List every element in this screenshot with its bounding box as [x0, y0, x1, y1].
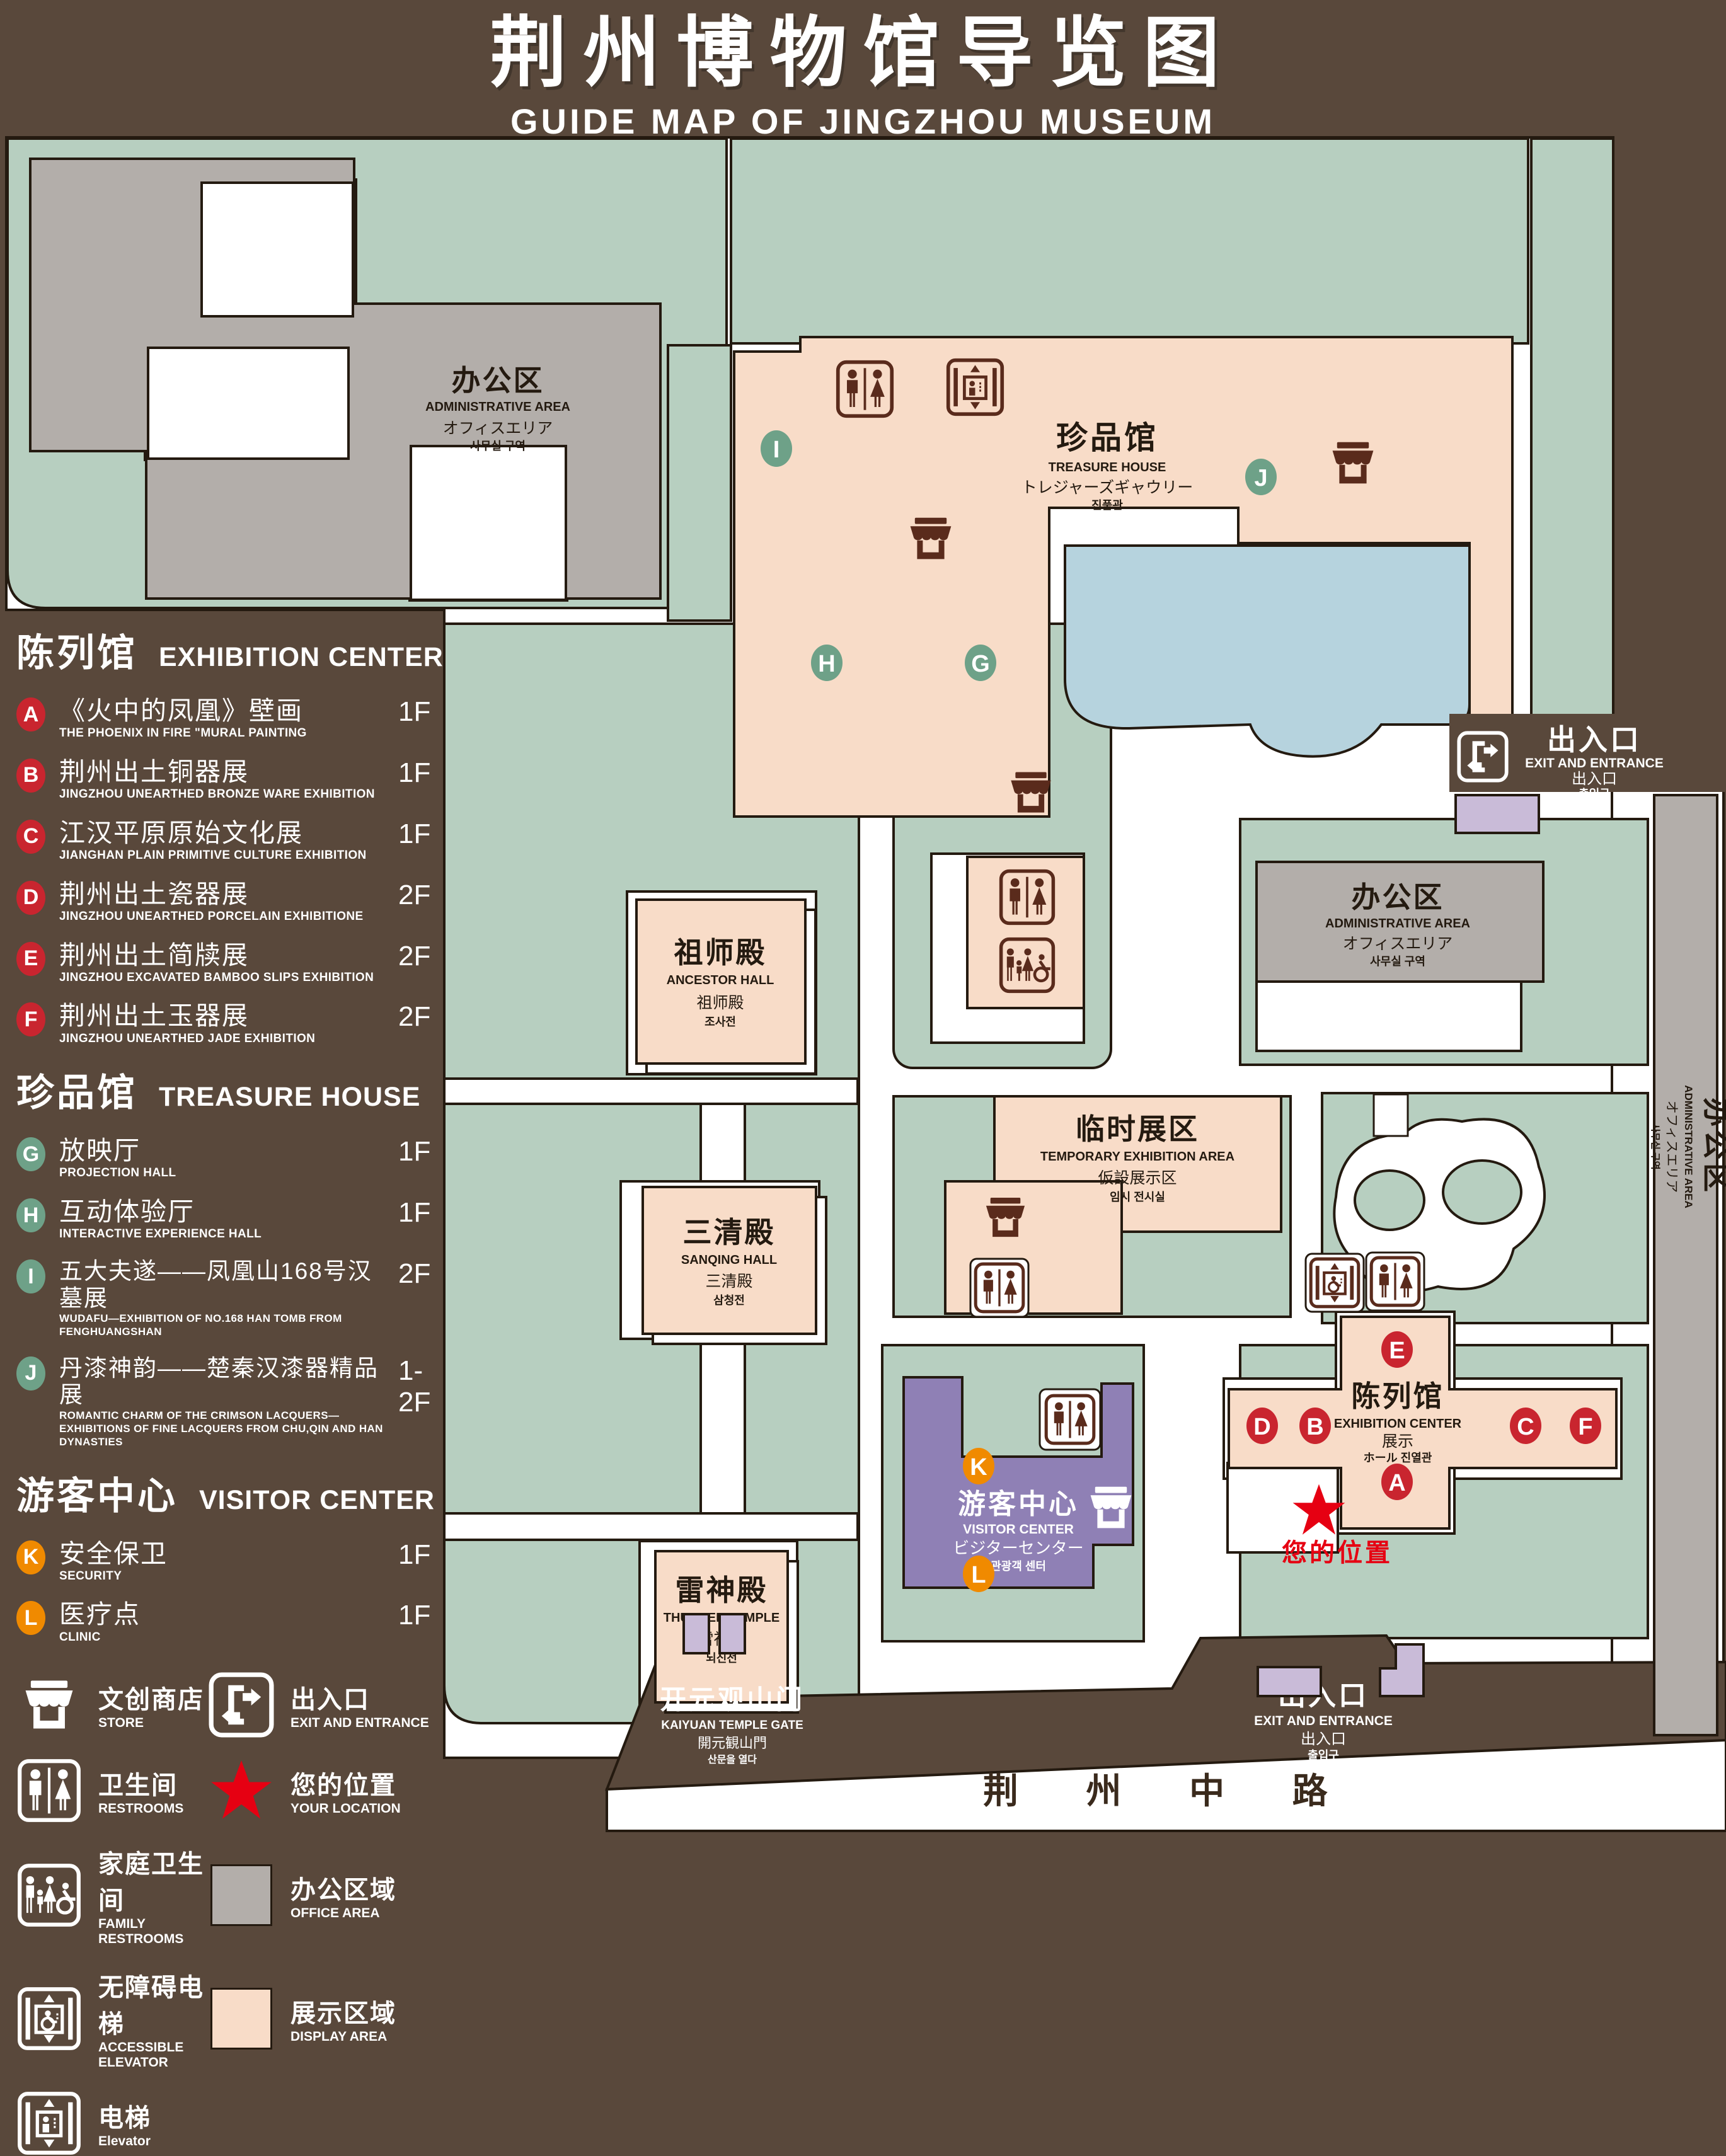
marker-badge: J: [16, 1356, 45, 1391]
svg-text:KAIYUAN TEMPLE GATE: KAIYUAN TEMPLE GATE: [661, 1719, 803, 1732]
svg-text:출입구: 출입구: [1308, 1748, 1339, 1762]
svg-text:珍品馆: 珍品馆: [1056, 420, 1158, 456]
svg-text:ADMINISTRATIVE AREA: ADMINISTRATIVE AREA: [1683, 1085, 1694, 1208]
svg-text:トレジャーズギャウリー: トレジャーズギャウリー: [1021, 479, 1194, 496]
svg-text:관광객 센터: 관광객 센터: [991, 1560, 1046, 1573]
svg-text:出入口: 出入口: [1301, 1731, 1346, 1748]
floor-label: 2F: [398, 880, 451, 911]
svg-text:仮設展示区: 仮設展示区: [1098, 1169, 1177, 1187]
svg-text:삼청전: 삼청전: [713, 1294, 745, 1307]
section-title-en: EXHIBITION CENTER: [159, 642, 444, 673]
svg-text:진품관: 진품관: [1091, 499, 1123, 512]
legend-item-h: H 互动体验厅INTERACTIVE EXPERIENCE HALL 1F: [16, 1197, 451, 1242]
display-area-swatch: [210, 1988, 272, 2050]
legend-item-k: K 安全保卫SECURITY 1F: [16, 1539, 451, 1584]
svg-text:办公区: 办公区: [452, 364, 544, 397]
svg-text:三清殿: 三清殿: [683, 1216, 776, 1249]
svg-text:EXIT AND ENTRANCE: EXIT AND ENTRANCE: [1254, 1714, 1393, 1728]
restroom-icon: [16, 1758, 82, 1823]
svg-text:出入口: 出入口: [1547, 723, 1642, 756]
section-title-zh: 陈列馆: [16, 622, 137, 677]
building-ancestor-hall: 祖师殿 ANCESTOR HALL 祖师殿 조사전: [636, 900, 815, 1074]
svg-text:L: L: [971, 1562, 986, 1588]
floor-label: 1F: [398, 818, 451, 850]
floor-label: 2F: [398, 1258, 451, 1290]
road-label: 荆 州 中 路: [983, 1771, 1357, 1811]
marker-badge: H: [16, 1198, 45, 1232]
svg-text:TEMPORARY EXHIBITION AREA: TEMPORARY EXHIBITION AREA: [1040, 1150, 1234, 1164]
marker-badge: K: [16, 1540, 45, 1574]
store-icon: [16, 1672, 82, 1738]
svg-text:K: K: [970, 1454, 987, 1481]
floor-label: 1F: [398, 1197, 451, 1229]
legend-symbols: 文创商店STORE 出入口EXIT AND ENTRANCE 卫生间RESTRO…: [16, 1672, 451, 2156]
svg-text:H: H: [818, 651, 835, 677]
svg-text:사무실 구역: 사무실 구역: [1650, 1123, 1660, 1169]
legend-symbol-display-area: 展示区域DISPLAY AREA: [209, 1967, 451, 2070]
svg-text:ビジターセンター: ビジターセンター: [953, 1539, 1083, 1557]
svg-text:ANCESTOR HALL: ANCESTOR HALL: [667, 973, 774, 987]
svg-text:ADMINISTRATIVE AREA: ADMINISTRATIVE AREA: [425, 400, 570, 414]
svg-text:您的位置: 您的位置: [1282, 1539, 1393, 1567]
svg-text:EXIT AND ENTRANCE: EXIT AND ENTRANCE: [1525, 756, 1664, 771]
building-restrooms-block: [967, 857, 1084, 1008]
svg-text:사무실 구역: 사무실 구역: [1370, 955, 1425, 968]
svg-text:출입구: 출입구: [1579, 787, 1610, 800]
exit-icon: [209, 1672, 274, 1738]
svg-text:TREASURE HOUSE: TREASURE HOUSE: [1049, 461, 1166, 474]
legend-symbol-restrooms: 卫生间RESTROOMS: [16, 1758, 209, 1823]
floor-label: 2F: [398, 941, 451, 972]
svg-text:开元观山门: 开元观山门: [660, 1685, 805, 1714]
svg-text:F: F: [1578, 1414, 1592, 1440]
marker-badge: L: [16, 1601, 45, 1635]
svg-text:オフィスエリア: オフィスエリア: [1343, 935, 1453, 953]
legend-symbol-exit: 出入口EXIT AND ENTRANCE: [209, 1672, 451, 1738]
exit-right-building: [1456, 795, 1539, 833]
svg-text:办公区: 办公区: [1352, 881, 1444, 914]
building-admin-right: 办公区 ADMINISTRATIVE AREA オフィスエリア 사무실 구역: [1650, 795, 1726, 1735]
your-location-star-icon: [209, 1758, 274, 1823]
svg-text:B: B: [1306, 1414, 1323, 1440]
svg-text:游客中心: 游客中心: [958, 1489, 1079, 1520]
svg-text:出入口: 出入口: [1572, 771, 1617, 788]
svg-text:ADMINISTRATIVE AREA: ADMINISTRATIVE AREA: [1325, 917, 1470, 931]
marker-badge: A: [16, 697, 45, 731]
marker-badge: G: [16, 1137, 45, 1171]
legend-symbol-family-restrooms: 家庭卫生间FAMILY RESTROOMS: [16, 1843, 209, 1947]
svg-text:조사전: 조사전: [705, 1016, 736, 1028]
marker-badge: C: [16, 820, 45, 854]
svg-text:사무실 구역: 사무실 구역: [470, 440, 526, 452]
svg-text:祖师殿: 祖师殿: [674, 936, 767, 969]
marker-badge: D: [16, 881, 45, 915]
legend-symbol-your-location: 您的位置YOUR LOCATION: [209, 1758, 451, 1823]
floor-label: 2F: [398, 1001, 451, 1033]
legend-item-e: E 荆州出土简牍展JINGZHOU EXCAVATED BAMBOO SLIPS…: [16, 941, 451, 985]
svg-text:G: G: [971, 651, 990, 677]
svg-text:開元観山門: 開元観山門: [698, 1735, 767, 1751]
svg-text:オフィスエリア: オフィスエリア: [1664, 1101, 1679, 1193]
svg-text:J: J: [1254, 465, 1267, 491]
svg-text:临时展区: 临时展区: [1076, 1113, 1199, 1145]
accessible-elevator-icon: [1311, 1259, 1359, 1307]
title-zh: 荆州博物馆导览图: [0, 9, 1726, 97]
svg-text:陈列馆: 陈列馆: [1352, 1380, 1444, 1413]
family-restroom-icon: [16, 1862, 82, 1928]
floor-label: 1F: [398, 1539, 451, 1571]
svg-text:展示: 展示: [1382, 1433, 1413, 1450]
svg-text:VISITOR CENTER: VISITOR CENTER: [963, 1522, 1074, 1537]
legend: 陈列馆 EXHIBITION CENTER A 《火中的凤凰》壁画THE PHO…: [16, 622, 451, 2156]
legend-section-treasure-house: 珍品馆 TREASURE HOUSE: [16, 1062, 451, 1117]
floor-label: 1F: [398, 696, 451, 728]
legend-item-b: B 荆州出土铜器展JINGZHOU UNEARTHED BRONZE WARE …: [16, 757, 451, 802]
svg-text:임시 전시실: 임시 전시실: [1110, 1191, 1165, 1203]
legend-item-j: J 丹漆神韵——楚秦汉漆器精品展ROMANTIC CHARM OF THE CR…: [16, 1355, 451, 1449]
pond: [1065, 546, 1470, 757]
legend-item-d: D 荆州出土瓷器展JINGZHOU UNEARTHED PORCELAIN EX…: [16, 880, 451, 924]
svg-text:ホール 진열관: ホール 진열관: [1364, 1452, 1432, 1464]
legend-item-g: G 放映厅PROJECTION HALL 1F: [16, 1136, 451, 1181]
floor-label: 1F: [398, 1136, 451, 1167]
svg-text:办公区: 办公区: [1700, 1098, 1726, 1196]
svg-text:祖师殿: 祖师殿: [696, 994, 744, 1012]
legend-item-l: L 医疗点CLINIC 1F: [16, 1600, 451, 1644]
title-en: GUIDE MAP OF JINGZHOU MUSEUM: [0, 101, 1726, 142]
marker-badge: I: [16, 1259, 45, 1293]
svg-text:I: I: [773, 437, 780, 463]
svg-text:C: C: [1517, 1414, 1534, 1440]
office-area-swatch: [210, 1864, 272, 1926]
svg-text:EXHIBITION CENTER: EXHIBITION CENTER: [1334, 1417, 1462, 1431]
legend-item-i: I 五大夫遂——凤凰山168号汉墓展WUDAFU—EXHIBITION OF N…: [16, 1258, 451, 1339]
page-title: 荆州博物馆导览图 GUIDE MAP OF JINGZHOU MUSEUM: [0, 9, 1726, 142]
building-admin-mid: 办公区 ADMINISTRATIVE AREA オフィスエリア 사무실 구역: [1257, 862, 1543, 982]
legend-section-visitor-center: 游客中心 VISITOR CENTER: [16, 1465, 451, 1520]
building-sanqing-hall: 三清殿 SANQING HALL 三清殿 삼청전: [643, 1187, 826, 1344]
svg-text:雷神殿: 雷神殿: [676, 1574, 768, 1607]
svg-text:A: A: [1388, 1470, 1405, 1496]
svg-text:三清殿: 三清殿: [705, 1273, 752, 1290]
legend-symbol-store: 文创商店STORE: [16, 1672, 209, 1738]
legend-item-f: F 荆州出土玉器展JINGZHOU UNEARTHED JADE EXHIBIT…: [16, 1001, 451, 1046]
svg-text:SANQING HALL: SANQING HALL: [681, 1253, 777, 1267]
marker-badge: F: [16, 1002, 45, 1036]
gate-side-building: [1258, 1667, 1321, 1696]
legend-symbol-accessible-elevator: 无障碍电梯ACCESSIBLE ELEVATOR: [16, 1967, 209, 2070]
legend-item-c: C 江汉平原原始文化展JIANGHAN PLAIN PRIMITIVE CULT…: [16, 818, 451, 863]
legend-symbol-elevator: 电梯Elevator: [16, 2090, 209, 2156]
floor-label: 1F: [398, 757, 451, 789]
elevator-icon: [16, 2090, 82, 2156]
marker-badge: E: [16, 942, 45, 976]
legend-symbol-office-area: 办公区域OFFICE AREA: [209, 1843, 451, 1947]
svg-text:E: E: [1389, 1338, 1405, 1364]
svg-text:オフィスエリア: オフィスエリア: [443, 420, 553, 437]
marker-badge: B: [16, 759, 45, 793]
legend-section-exhibition-center: 陈列馆 EXHIBITION CENTER: [16, 622, 451, 677]
svg-text:산문을 열다: 산문을 열다: [708, 1754, 757, 1765]
floor-label: 1F: [398, 1600, 451, 1631]
accessible-elevator-icon: [16, 1986, 82, 2051]
svg-text:D: D: [1253, 1414, 1270, 1440]
legend-item-a: A 《火中的凤凰》壁画THE PHOENIX IN FIRE "MURAL PA…: [16, 696, 451, 741]
floor-label: 1-2F: [398, 1355, 451, 1418]
